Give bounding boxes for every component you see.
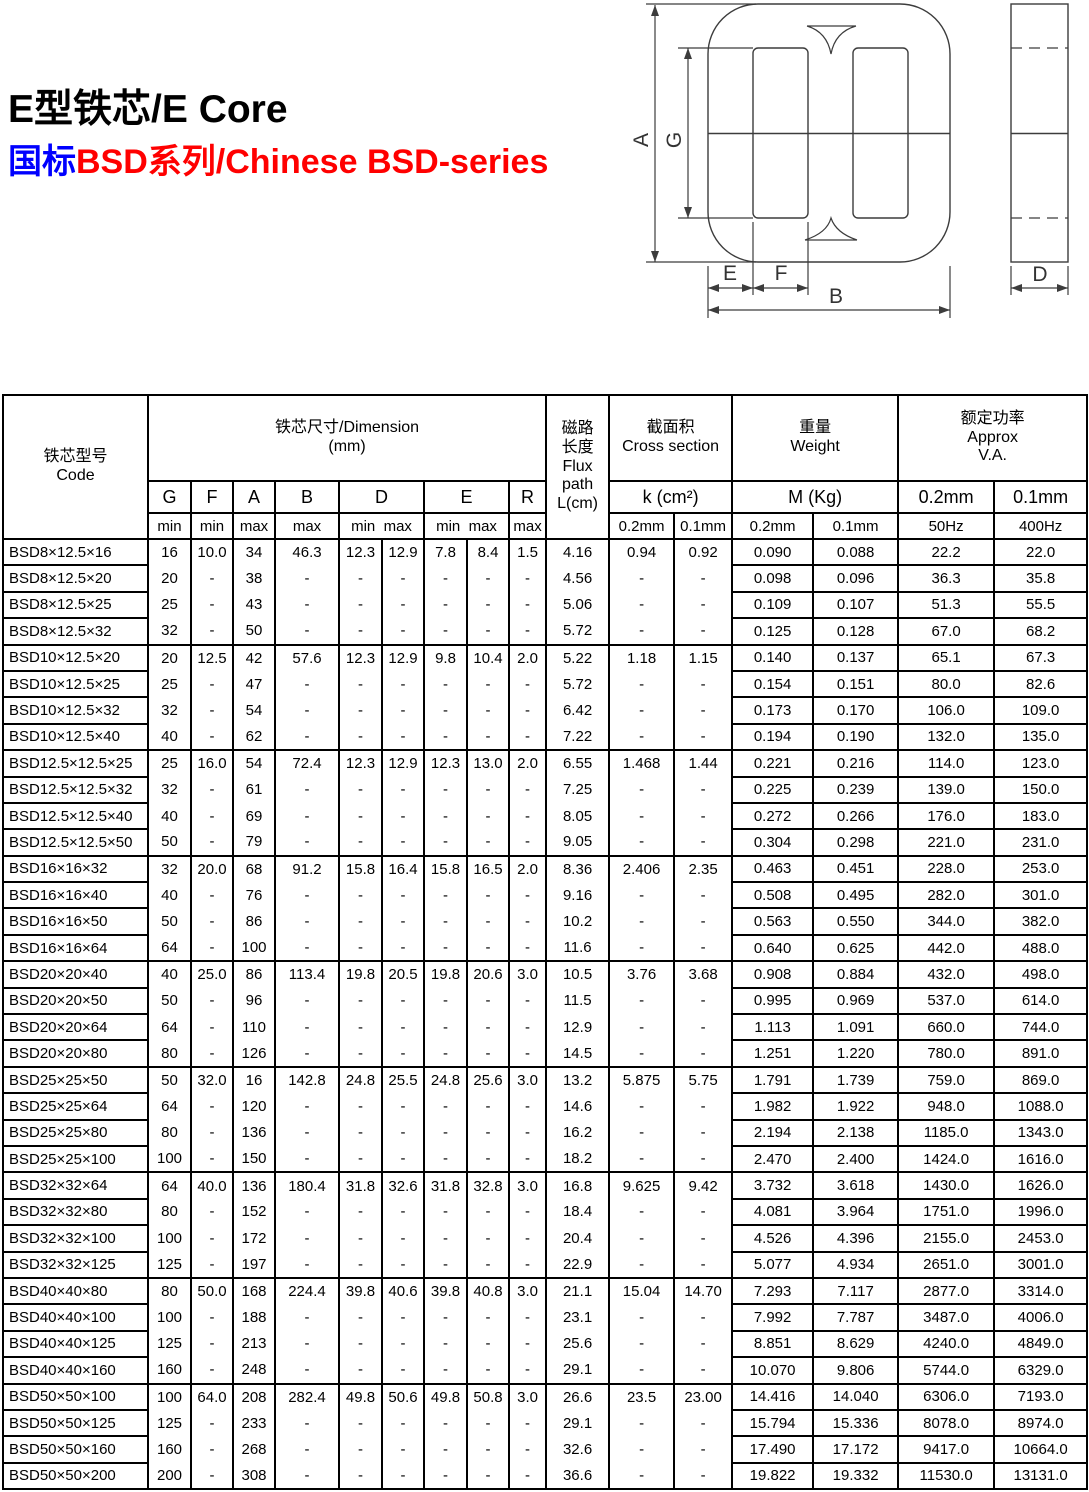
value-cell: 40: [148, 882, 191, 908]
value-cell: -: [382, 1252, 424, 1278]
value-cell: -: [191, 1199, 233, 1225]
value-cell: 123.0: [994, 750, 1087, 776]
value-cell: 168: [233, 1278, 275, 1304]
value-cell: 36.6: [546, 1463, 609, 1489]
value-cell: -: [382, 1199, 424, 1225]
value-cell: 17.172: [813, 1436, 898, 1462]
value-cell: 15.794: [732, 1410, 813, 1436]
arrowhead: [797, 284, 808, 292]
value-cell: 16.5: [467, 856, 509, 882]
value-cell: -: [674, 724, 732, 750]
value-cell: 15.336: [813, 1410, 898, 1436]
value-cell: 1616.0: [994, 1146, 1087, 1172]
value-cell: 32.8: [467, 1172, 509, 1198]
value-cell: -: [609, 1040, 674, 1066]
value-cell: -: [339, 1199, 382, 1225]
value-cell: 21.1: [546, 1278, 609, 1304]
value-cell: -: [424, 882, 467, 908]
core-code-cell: BSD32×32×125: [3, 1252, 148, 1278]
value-cell: 498.0: [994, 961, 1087, 987]
arrowhead: [939, 306, 950, 314]
value-cell: 2.35: [674, 856, 732, 882]
value-cell: 224.4: [275, 1278, 339, 1304]
table-row: BSD8×12.5×3232-50------5.72--0.1250.1286…: [3, 618, 1087, 644]
value-cell: -: [674, 671, 732, 697]
value-cell: 54: [233, 750, 275, 776]
value-cell: 9.8: [424, 645, 467, 671]
value-cell: -: [275, 988, 339, 1014]
value-cell: 2.0: [509, 750, 546, 776]
value-cell: -: [509, 1014, 546, 1040]
value-cell: -: [674, 988, 732, 1014]
value-cell: 10.5: [546, 961, 609, 987]
value-cell: -: [609, 1357, 674, 1383]
value-cell: 12.9: [546, 1014, 609, 1040]
value-cell: 2.194: [732, 1120, 813, 1146]
value-cell: 948.0: [898, 1093, 994, 1119]
value-cell: 5.875: [609, 1067, 674, 1093]
core-code-cell: BSD20×20×50: [3, 988, 148, 1014]
value-cell: -: [339, 671, 382, 697]
value-cell: 0.098: [732, 565, 813, 591]
value-cell: 0.140: [732, 645, 813, 671]
value-cell: 49.8: [424, 1384, 467, 1410]
value-cell: 213: [233, 1331, 275, 1357]
spec-group: BSD40×40×808050.0168224.439.840.639.840.…: [3, 1278, 1087, 1384]
value-cell: 231.0: [994, 829, 1087, 855]
value-cell: 18.2: [546, 1146, 609, 1172]
value-cell: 20: [148, 565, 191, 591]
value-cell: 25.5: [382, 1067, 424, 1093]
value-cell: 6.55: [546, 750, 609, 776]
value-cell: -: [191, 1146, 233, 1172]
core-code-cell: BSD32×32×100: [3, 1225, 148, 1251]
value-cell: 16: [233, 1067, 275, 1093]
value-cell: 3.0: [509, 1067, 546, 1093]
value-cell: 344.0: [898, 908, 994, 934]
value-cell: 3314.0: [994, 1278, 1087, 1304]
value-cell: 0.995: [732, 988, 813, 1014]
value-cell: -: [275, 565, 339, 591]
value-cell: 139.0: [898, 777, 994, 803]
value-cell: -: [275, 1120, 339, 1146]
page-title: E型铁芯/E Core: [8, 78, 288, 134]
value-cell: -: [339, 777, 382, 803]
value-cell: -: [339, 935, 382, 961]
value-cell: 537.0: [898, 988, 994, 1014]
value-cell: -: [382, 1093, 424, 1119]
value-cell: 32: [148, 856, 191, 882]
value-cell: 39.8: [339, 1278, 382, 1304]
table-row: BSD50×50×10010064.0208282.449.850.649.85…: [3, 1384, 1087, 1410]
value-cell: 1996.0: [994, 1199, 1087, 1225]
value-cell: 64: [148, 935, 191, 961]
header-dim-b: B: [275, 481, 339, 513]
value-cell: -: [509, 1436, 546, 1462]
header-va-50hz: 50Hz: [898, 513, 994, 539]
value-cell: -: [467, 1014, 509, 1040]
value-cell: 39.8: [424, 1278, 467, 1304]
value-cell: -: [509, 724, 546, 750]
table-row: BSD32×32×8080-152------18.4--4.0813.9641…: [3, 1199, 1087, 1225]
value-cell: 0.640: [732, 935, 813, 961]
value-cell: 29.1: [546, 1410, 609, 1436]
value-cell: -: [339, 618, 382, 644]
header-dim-a: A: [233, 481, 275, 513]
header-dim-g: G: [148, 481, 191, 513]
value-cell: -: [191, 803, 233, 829]
value-cell: -: [674, 1014, 732, 1040]
value-cell: 40: [148, 724, 191, 750]
table-row: BSD16×16×6464-100------11.6--0.6400.6254…: [3, 935, 1087, 961]
top-notch: [807, 26, 856, 54]
core-code-cell: BSD12.5×12.5×32: [3, 777, 148, 803]
value-cell: -: [467, 1093, 509, 1119]
value-cell: -: [424, 1225, 467, 1251]
value-cell: 1751.0: [898, 1199, 994, 1225]
value-cell: 113.4: [275, 961, 339, 987]
value-cell: 0.266: [813, 803, 898, 829]
core-code-cell: BSD10×12.5×20: [3, 645, 148, 671]
value-cell: 0.550: [813, 908, 898, 934]
value-cell: 10.2: [546, 908, 609, 934]
value-cell: 36.3: [898, 565, 994, 591]
value-cell: -: [509, 592, 546, 618]
value-cell: -: [191, 1120, 233, 1146]
value-cell: 7.787: [813, 1304, 898, 1330]
header-va-02mm: 0.2mm: [898, 481, 994, 513]
value-cell: -: [509, 671, 546, 697]
value-cell: 14.416: [732, 1384, 813, 1410]
value-cell: -: [424, 908, 467, 934]
value-cell: 12.3: [339, 645, 382, 671]
value-cell: -: [674, 1304, 732, 1330]
value-cell: -: [509, 618, 546, 644]
value-cell: -: [509, 565, 546, 591]
core-code-cell: BSD10×12.5×40: [3, 724, 148, 750]
value-cell: 86: [233, 908, 275, 934]
subtitle-series: BSD系列/Chinese BSD-series: [76, 143, 548, 181]
value-cell: 20: [148, 645, 191, 671]
value-cell: -: [509, 1331, 546, 1357]
value-cell: 160: [148, 1357, 191, 1383]
value-cell: -: [382, 882, 424, 908]
table-row: BSD10×12.5×3232-54------6.42--0.1730.170…: [3, 697, 1087, 723]
value-cell: -: [609, 618, 674, 644]
value-cell: 1.468: [609, 750, 674, 776]
value-cell: -: [509, 1357, 546, 1383]
value-cell: 0.137: [813, 645, 898, 671]
value-cell: -: [467, 882, 509, 908]
dim-label-f: F: [775, 262, 788, 285]
value-cell: -: [382, 1357, 424, 1383]
value-cell: 2.138: [813, 1120, 898, 1146]
value-cell: 2453.0: [994, 1225, 1087, 1251]
value-cell: -: [424, 1304, 467, 1330]
value-cell: 2.0: [509, 856, 546, 882]
value-cell: 17.490: [732, 1436, 813, 1462]
value-cell: -: [339, 1463, 382, 1489]
value-cell: 14.70: [674, 1278, 732, 1304]
table-row: BSD40×40×100100-188------23.1--7.9927.78…: [3, 1304, 1087, 1330]
value-cell: -: [275, 1252, 339, 1278]
table-row: BSD10×12.5×202012.54257.612.312.99.810.4…: [3, 645, 1087, 671]
value-cell: -: [382, 1463, 424, 1489]
value-cell: 382.0: [994, 908, 1087, 934]
value-cell: 4006.0: [994, 1304, 1087, 1330]
value-cell: 82.6: [994, 671, 1087, 697]
value-cell: 69: [233, 803, 275, 829]
value-cell: 9417.0: [898, 1436, 994, 1462]
header-approx-va: 额定功率 Approx V.A.: [898, 395, 1087, 481]
value-cell: -: [467, 1357, 509, 1383]
value-cell: 268: [233, 1436, 275, 1462]
value-cell: 10.0: [191, 539, 233, 565]
spec-group: BSD25×25×505032.016142.824.825.524.825.6…: [3, 1067, 1087, 1173]
value-cell: 86: [233, 961, 275, 987]
value-cell: 25: [148, 592, 191, 618]
value-cell: 4.396: [813, 1225, 898, 1251]
value-cell: 40.8: [467, 1278, 509, 1304]
value-cell: 1.982: [732, 1093, 813, 1119]
value-cell: 6306.0: [898, 1384, 994, 1410]
value-cell: 0.125: [732, 618, 813, 644]
value-cell: -: [275, 1436, 339, 1462]
value-cell: -: [424, 829, 467, 855]
subtitle-cn-prefix: 国标: [8, 143, 76, 181]
value-cell: -: [191, 592, 233, 618]
value-cell: 16.2: [546, 1120, 609, 1146]
value-cell: 32.6: [546, 1436, 609, 1462]
value-cell: -: [275, 882, 339, 908]
value-cell: 40: [148, 961, 191, 987]
value-cell: 2.470: [732, 1146, 813, 1172]
table-row: BSD25×25×6464-120------14.6--1.9821.9229…: [3, 1093, 1087, 1119]
value-cell: -: [275, 777, 339, 803]
value-cell: -: [424, 1199, 467, 1225]
value-cell: 55.5: [994, 592, 1087, 618]
value-cell: -: [509, 1199, 546, 1225]
value-cell: -: [275, 908, 339, 934]
value-cell: -: [191, 935, 233, 961]
value-cell: -: [674, 1199, 732, 1225]
value-cell: -: [467, 1410, 509, 1436]
value-cell: -: [191, 697, 233, 723]
value-cell: 5.72: [546, 618, 609, 644]
value-cell: -: [424, 724, 467, 750]
value-cell: -: [424, 1040, 467, 1066]
value-cell: 1.220: [813, 1040, 898, 1066]
spec-group: BSD50×50×10010064.0208282.449.850.649.85…: [3, 1384, 1087, 1490]
value-cell: -: [275, 935, 339, 961]
value-cell: -: [424, 618, 467, 644]
header-g-min: min: [148, 513, 191, 539]
header-r-max: max: [509, 513, 546, 539]
value-cell: 1.15: [674, 645, 732, 671]
value-cell: 3.68: [674, 961, 732, 987]
value-cell: 19.332: [813, 1463, 898, 1489]
value-cell: -: [339, 1252, 382, 1278]
value-cell: 23.00: [674, 1384, 732, 1410]
value-cell: -: [275, 1225, 339, 1251]
value-cell: 136: [233, 1120, 275, 1146]
value-cell: 96: [233, 988, 275, 1014]
value-cell: -: [275, 697, 339, 723]
value-cell: -: [467, 935, 509, 961]
value-cell: -: [509, 1463, 546, 1489]
value-cell: -: [339, 1436, 382, 1462]
header-cross-section: 截面积 Cross section: [609, 395, 732, 481]
value-cell: 135.0: [994, 724, 1087, 750]
value-cell: 9.16: [546, 882, 609, 908]
value-cell: 40.0: [191, 1172, 233, 1198]
value-cell: 8974.0: [994, 1410, 1087, 1436]
value-cell: -: [191, 1357, 233, 1383]
value-cell: -: [609, 1146, 674, 1172]
value-cell: 2.406: [609, 856, 674, 882]
value-cell: -: [467, 1146, 509, 1172]
value-cell: -: [509, 697, 546, 723]
value-cell: -: [609, 671, 674, 697]
value-cell: 660.0: [898, 1014, 994, 1040]
value-cell: 759.0: [898, 1067, 994, 1093]
value-cell: 10.4: [467, 645, 509, 671]
value-cell: -: [339, 1014, 382, 1040]
value-cell: -: [467, 1225, 509, 1251]
core-code-cell: BSD8×12.5×20: [3, 565, 148, 591]
core-code-cell: BSD25×25×100: [3, 1146, 148, 1172]
value-cell: -: [467, 671, 509, 697]
core-code-cell: BSD12.5×12.5×25: [3, 750, 148, 776]
value-cell: 8.629: [813, 1331, 898, 1357]
value-cell: -: [339, 829, 382, 855]
value-cell: 7193.0: [994, 1384, 1087, 1410]
value-cell: -: [609, 1304, 674, 1330]
value-cell: -: [609, 882, 674, 908]
value-cell: 50: [148, 988, 191, 1014]
arrowhead: [1011, 284, 1022, 292]
value-cell: 1.791: [732, 1067, 813, 1093]
value-cell: 0.088: [813, 539, 898, 565]
value-cell: 7.22: [546, 724, 609, 750]
value-cell: -: [467, 829, 509, 855]
table-row: BSD12.5×12.5×5050-79------9.05--0.3040.2…: [3, 829, 1087, 855]
header-row-1: 铁芯型号 Code 铁芯尺寸/Dimension (mm) 磁路 长度 Flux…: [3, 395, 1087, 481]
value-cell: -: [191, 618, 233, 644]
value-cell: 2.400: [813, 1146, 898, 1172]
value-cell: -: [339, 1225, 382, 1251]
arrowhead: [651, 251, 659, 262]
value-cell: 1.091: [813, 1014, 898, 1040]
value-cell: 20.6: [467, 961, 509, 987]
value-cell: 142.8: [275, 1067, 339, 1093]
value-cell: 13.2: [546, 1067, 609, 1093]
value-cell: 47: [233, 671, 275, 697]
table-header: 铁芯型号 Code 铁芯尺寸/Dimension (mm) 磁路 长度 Flux…: [3, 395, 1087, 539]
spec-group: BSD8×12.5×161610.03446.312.312.97.88.41.…: [3, 539, 1087, 645]
value-cell: 3.0: [509, 961, 546, 987]
value-cell: -: [467, 803, 509, 829]
value-cell: 64.0: [191, 1384, 233, 1410]
table-row: BSD10×12.5×2525-47------5.72--0.1540.151…: [3, 671, 1087, 697]
value-cell: 68: [233, 856, 275, 882]
value-cell: -: [275, 1040, 339, 1066]
value-cell: -: [339, 803, 382, 829]
value-cell: -: [424, 1120, 467, 1146]
value-cell: 14.040: [813, 1384, 898, 1410]
value-cell: -: [467, 777, 509, 803]
value-cell: -: [609, 935, 674, 961]
core-code-cell: BSD16×16×32: [3, 856, 148, 882]
value-cell: -: [339, 592, 382, 618]
value-cell: -: [424, 803, 467, 829]
value-cell: 76: [233, 882, 275, 908]
value-cell: -: [467, 1436, 509, 1462]
table-row: BSD12.5×12.5×4040-69------8.05--0.2720.2…: [3, 803, 1087, 829]
core-code-cell: BSD50×50×160: [3, 1436, 148, 1462]
value-cell: -: [674, 565, 732, 591]
value-cell: 20.4: [546, 1225, 609, 1251]
value-cell: -: [382, 618, 424, 644]
value-cell: 1.251: [732, 1040, 813, 1066]
core-code-cell: BSD16×16×40: [3, 882, 148, 908]
value-cell: 51.3: [898, 592, 994, 618]
value-cell: -: [191, 1463, 233, 1489]
value-cell: 22.9: [546, 1252, 609, 1278]
value-cell: 23.5: [609, 1384, 674, 1410]
value-cell: 0.884: [813, 961, 898, 987]
value-cell: -: [339, 1331, 382, 1357]
header-flux-path: 磁路 长度 Flux path L(cm): [546, 395, 609, 539]
value-cell: -: [191, 882, 233, 908]
value-cell: 0.298: [813, 829, 898, 855]
value-cell: -: [467, 618, 509, 644]
value-cell: -: [191, 829, 233, 855]
value-cell: 0.92: [674, 539, 732, 565]
value-cell: 228.0: [898, 856, 994, 882]
value-cell: 125: [148, 1410, 191, 1436]
value-cell: 11530.0: [898, 1463, 994, 1489]
dim-label-b: B: [829, 285, 843, 308]
table-row: BSD8×12.5×2020-38------4.56--0.0980.0963…: [3, 565, 1087, 591]
value-cell: 20.5: [382, 961, 424, 987]
value-cell: -: [339, 724, 382, 750]
value-cell: -: [509, 1040, 546, 1066]
value-cell: -: [674, 908, 732, 934]
value-cell: 8.36: [546, 856, 609, 882]
value-cell: 11.6: [546, 935, 609, 961]
value-cell: -: [339, 1304, 382, 1330]
arrowhead: [1057, 284, 1068, 292]
value-cell: -: [424, 1410, 467, 1436]
value-cell: -: [191, 724, 233, 750]
ecore-diagram-svg: A G E F B D: [630, 0, 1089, 340]
header-dimension: 铁芯尺寸/Dimension (mm): [148, 395, 546, 481]
value-cell: 100: [148, 1384, 191, 1410]
value-cell: 308: [233, 1463, 275, 1489]
value-cell: 1626.0: [994, 1172, 1087, 1198]
value-cell: 32: [148, 697, 191, 723]
value-cell: 2.0: [509, 645, 546, 671]
header-dim-e: E: [424, 481, 509, 513]
value-cell: -: [674, 1436, 732, 1462]
value-cell: -: [467, 565, 509, 591]
header-m-01mm: 0.1mm: [813, 513, 898, 539]
value-cell: 488.0: [994, 935, 1087, 961]
header-b-max: max: [275, 513, 339, 539]
header-va-01mm: 0.1mm: [994, 481, 1087, 513]
table-row: BSD12.5×12.5×252516.05472.412.312.912.31…: [3, 750, 1087, 776]
